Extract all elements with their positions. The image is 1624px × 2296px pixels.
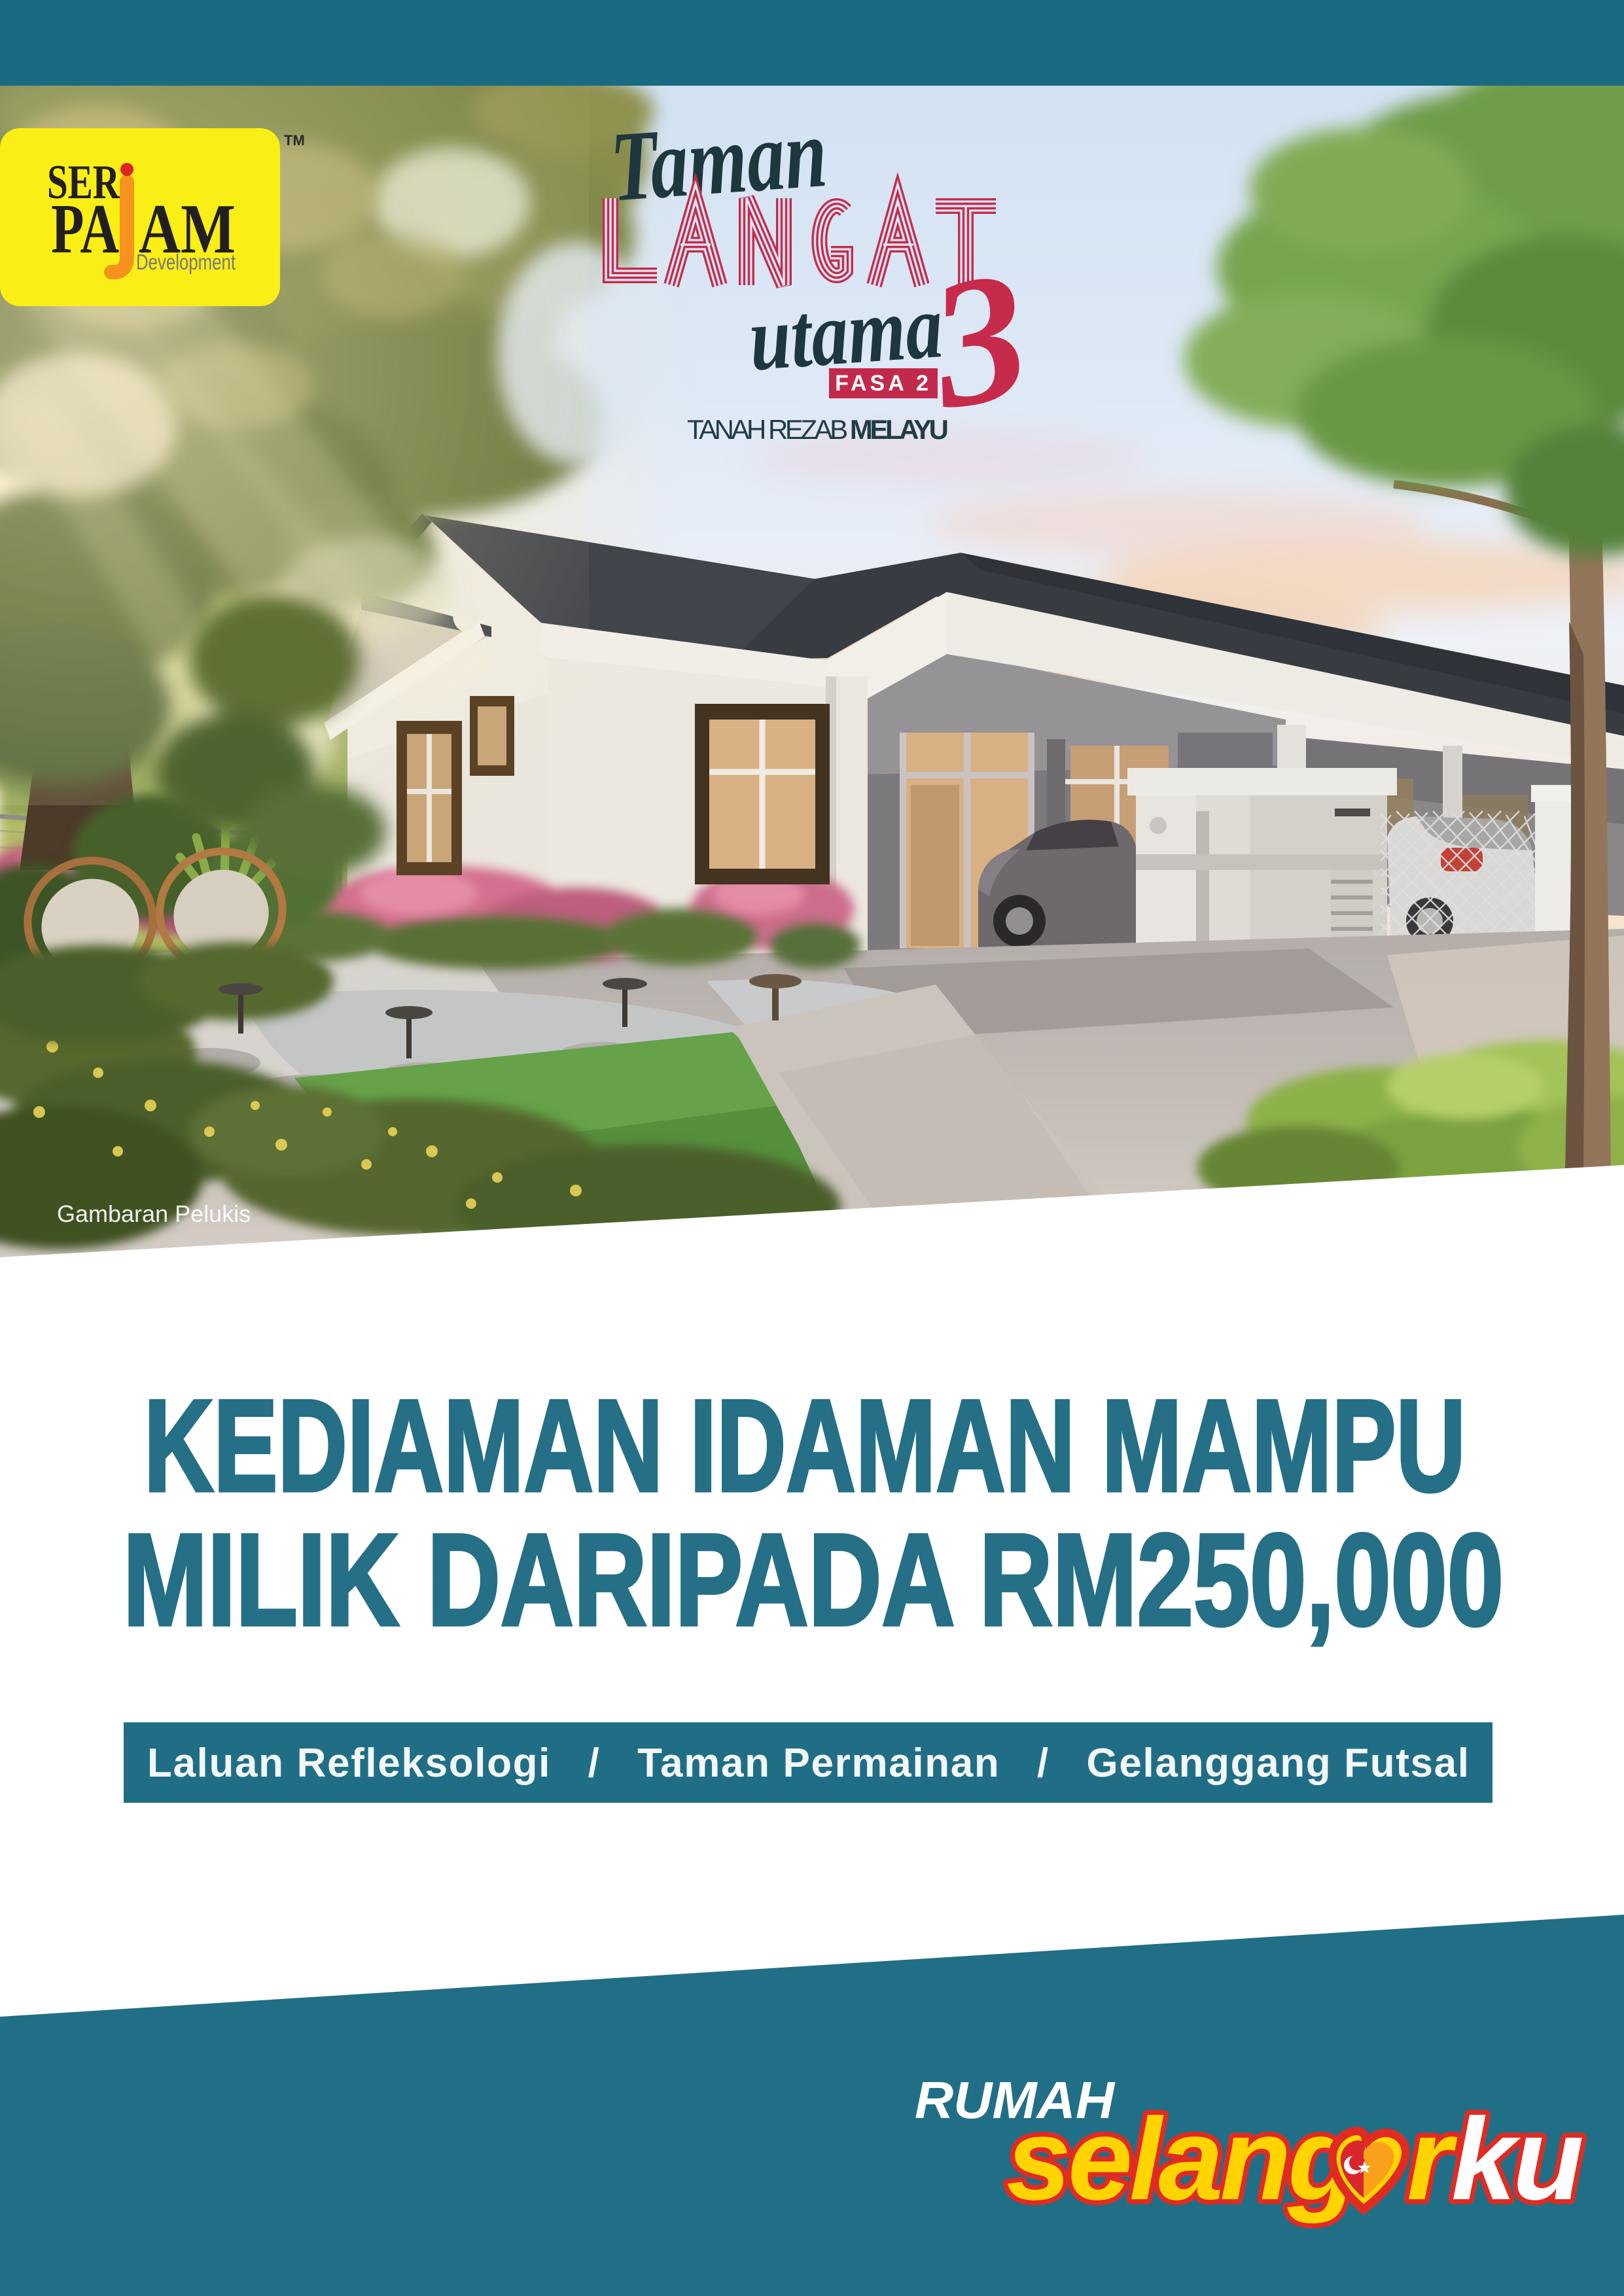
svg-text:Development: Development [136, 250, 236, 274]
svg-text:selang: selang [1006, 2094, 1357, 2224]
svg-text:Laluan Refleksologi / Tama: Laluan Refleksologi / Taman Permainan / … [147, 1741, 1469, 1786]
svg-text:r: r [1407, 2094, 1458, 2224]
svg-text:KEDIAMAN IDAMAN MAMPU: KEDIAMAN IDAMAN MAMPU [144, 1374, 1466, 1519]
svg-text:MILIK DARIPADA RM250,000: MILIK DARIPADA RM250,000 [123, 1507, 1504, 1648]
svg-text:Gambaran Pelukis: Gambaran Pelukis [57, 1200, 251, 1227]
svg-text:PA: PA [51, 190, 119, 268]
svg-text:ku: ku [1451, 2094, 1582, 2224]
svg-text:TM: TM [284, 132, 305, 148]
svg-text:TANAH REZAB MELAYU: TANAH REZAB MELAYU [687, 414, 949, 445]
svg-text:FASA 2: FASA 2 [835, 371, 932, 396]
svg-text:Taman: Taman [607, 98, 830, 222]
